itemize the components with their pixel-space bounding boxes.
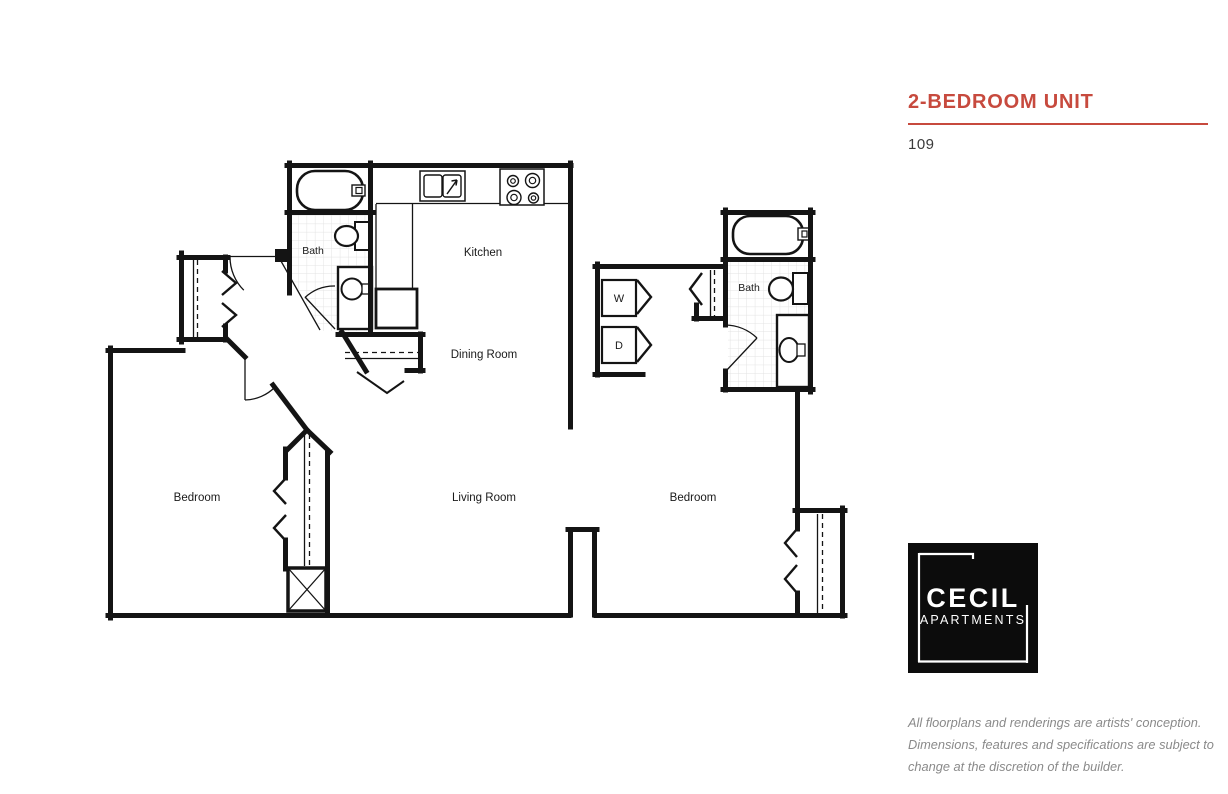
door-jamb (275, 249, 288, 262)
disclaimer-line: Dimensions, features and specifications … (908, 734, 1228, 756)
logo-name: CECIL (908, 583, 1038, 614)
floorplan-sheet: Bath Kitchen Dining Room Living Room Bed… (0, 0, 1228, 794)
toilet-icon (793, 273, 808, 304)
room-label-bedroom1: Bedroom (174, 492, 221, 504)
room-label-bath1: Bath (302, 245, 324, 257)
room-label-dining: Dining Room (451, 349, 517, 361)
page-title: 2-BEDROOM UNIT (908, 91, 1208, 125)
room-label-kitchen: Kitchen (464, 247, 502, 259)
kitchen-counter (376, 289, 417, 328)
disclaimer-line: change at the discretion of the builder. (908, 756, 1228, 778)
unit-number: 109 (908, 136, 1208, 153)
washer-label: W (614, 293, 625, 305)
kitchen-sink-icon (420, 171, 465, 201)
disclaimer-line: All floorplans and renderings are artist… (908, 712, 1228, 734)
room-label-bedroom2: Bedroom (670, 492, 717, 504)
logo-subtitle: APARTMENTS (908, 613, 1038, 627)
stove-icon (500, 169, 544, 205)
disclaimer: All floorplans and renderings are artist… (908, 712, 1228, 778)
room-label-living: Living Room (452, 492, 516, 504)
room-label-bath2: Bath (738, 282, 760, 294)
dryer-label: D (615, 340, 623, 352)
bathtub-icon (733, 216, 803, 254)
brand-logo: CECIL APARTMENTS (908, 543, 1038, 673)
unit-header: 2-BEDROOM UNIT 109 (908, 91, 1208, 153)
